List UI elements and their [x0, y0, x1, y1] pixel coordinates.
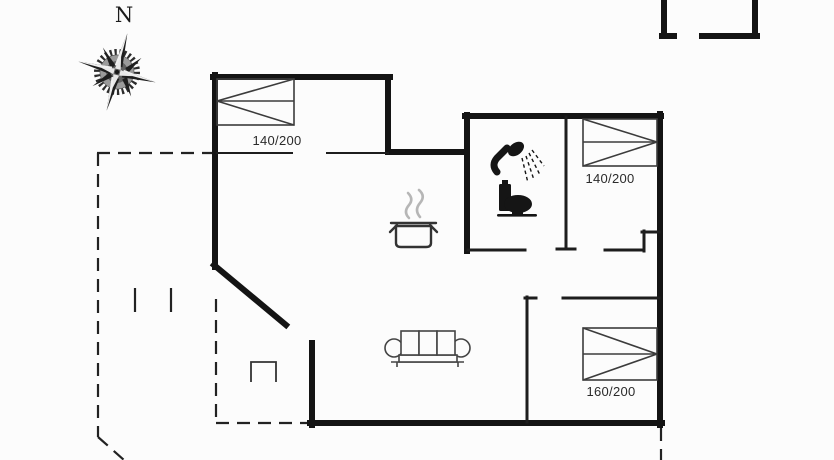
- bed-icon-top-right: [583, 119, 657, 166]
- north-label: N: [104, 3, 144, 27]
- bed-icon-top-left: [217, 79, 294, 125]
- compass-rose-icon: [68, 23, 166, 121]
- small-furniture-outline: [251, 362, 276, 382]
- terrace-step-marks: [135, 288, 171, 312]
- bed-size-label-bedroom-top-right: 140/200: [565, 171, 655, 186]
- bed-icon-bottom-right: [583, 328, 657, 380]
- steam-icon: [406, 190, 423, 218]
- shower-icon: [494, 139, 544, 183]
- terrace-dashed-outline-west: [97, 153, 212, 460]
- floor-plan-drawing: [0, 0, 834, 460]
- annex-walls: [662, 0, 757, 36]
- toilet-icon: [497, 180, 537, 217]
- sofa-icon: [385, 331, 470, 367]
- exterior-walls: [213, 75, 662, 425]
- bed-size-label-bedroom-bottom-right: 160/200: [566, 384, 656, 399]
- cooking-pot-icon: [390, 223, 437, 247]
- bed-size-label-bedroom-top-left: 140/200: [232, 133, 322, 148]
- floor-plan-canvas: N 140/200 140/200 160/200: [0, 0, 834, 460]
